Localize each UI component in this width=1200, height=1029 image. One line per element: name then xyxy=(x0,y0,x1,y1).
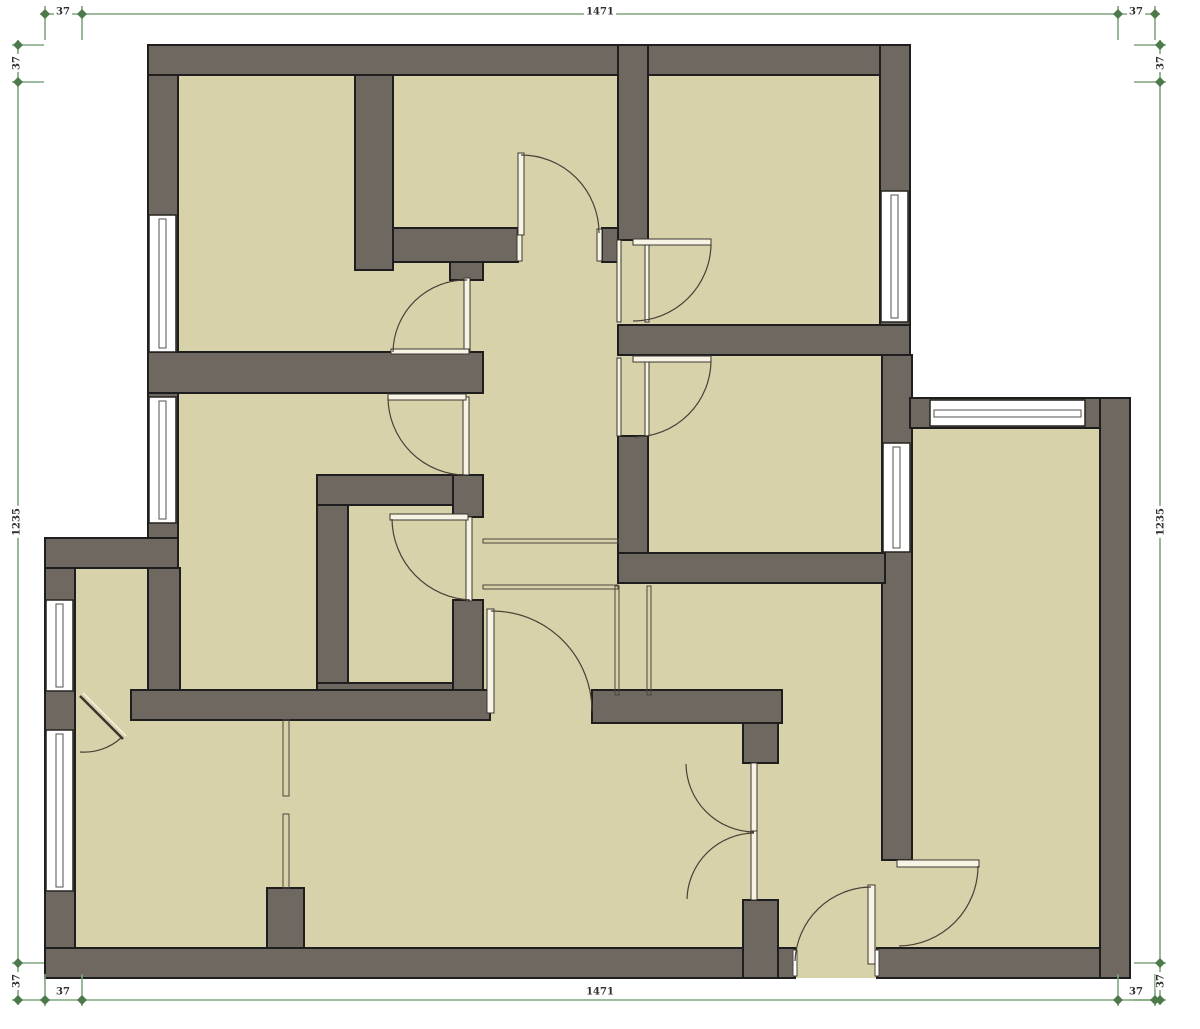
dim-bottom-right-label: 37 xyxy=(1127,987,1145,998)
floor-plan-page: 37 1471 37 37 1471 37 37 1235 37 37 1235… xyxy=(0,0,1200,1029)
window xyxy=(46,730,73,891)
window xyxy=(149,397,176,523)
dim-top-middle-label: 1471 xyxy=(584,7,616,18)
window xyxy=(883,443,910,552)
dim-top-right-label: 37 xyxy=(1127,7,1145,18)
window xyxy=(46,600,73,691)
floor-plan-canvas[interactable] xyxy=(0,0,1200,1029)
dim-right-top-label: 37 xyxy=(1156,54,1167,72)
dim-bottom-middle-label: 1471 xyxy=(584,987,616,998)
dim-right-middle-label: 1235 xyxy=(1156,506,1167,538)
window xyxy=(930,400,1085,426)
floor-area xyxy=(45,45,1130,978)
window xyxy=(149,215,176,352)
dim-right-bottom-label: 37 xyxy=(1156,972,1167,990)
dim-left-top-label: 37 xyxy=(12,54,23,72)
dim-left-middle-label: 1235 xyxy=(12,506,23,538)
dim-top-left-label: 37 xyxy=(54,7,72,18)
dim-bottom-left-label: 37 xyxy=(54,987,72,998)
window xyxy=(881,191,908,322)
dim-left-bottom-label: 37 xyxy=(12,972,23,990)
